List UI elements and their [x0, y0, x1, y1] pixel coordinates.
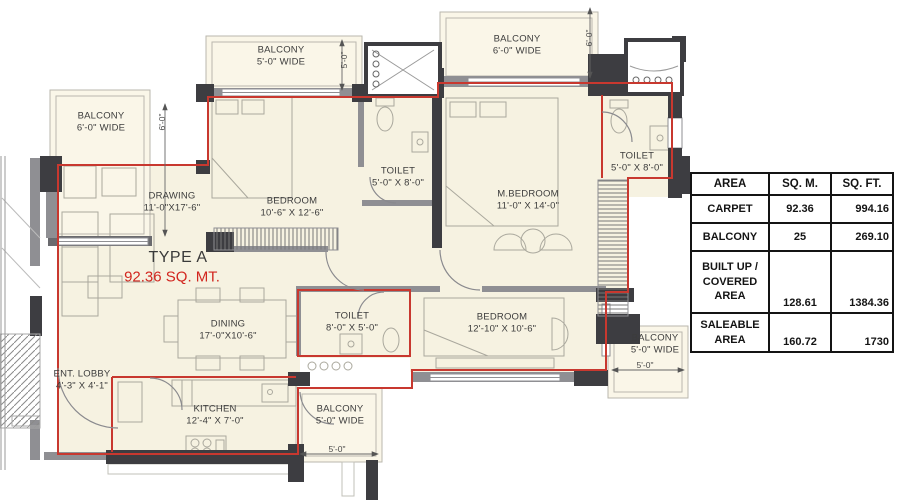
room-label-toilet-right: TOILET 5'-0" X 8'-0"	[611, 151, 663, 176]
room-name: DINING	[199, 319, 256, 331]
room-label-balcony-top: BALCONY 5'-0" WIDE	[257, 45, 305, 70]
room-label-m-bedroom: M.BEDROOM 11'-0" X 14'-0"	[497, 189, 559, 214]
room-dims: 6'-0" WIDE	[493, 46, 541, 58]
room-dims: 11'-0" X 14'-0"	[497, 201, 559, 213]
row-sqft: 1384.36	[831, 251, 893, 313]
area-table-header-area: AREA	[691, 173, 769, 195]
room-label-ent-lobby: ENT. LOBBY 4'-3" X 4'-1"	[54, 369, 111, 394]
room-name: BEDROOM	[468, 312, 537, 324]
row-label: BALCONY	[691, 223, 769, 251]
room-dims: 4'-3" X 4'-1"	[54, 381, 111, 393]
row-sqft: 994.16	[831, 195, 893, 223]
area-table-row-built-up: BUILT UP / COVERED AREA 128.61 1384.36	[691, 251, 893, 313]
room-label-kitchen: KITCHEN 12'-4" X 7'-0"	[186, 404, 244, 429]
room-label-toilet-mid: TOILET 8'-0" X 5'-0"	[326, 311, 378, 336]
room-label-balcony-right-bottom: BALCONY 5'-0" WIDE	[631, 333, 679, 358]
room-name: BEDROOM	[260, 196, 323, 208]
row-label: SALEABLE AREA	[691, 313, 769, 352]
room-dims: 5'-0" WIDE	[316, 416, 364, 428]
unit-area-label: 92.36 SQ. MT.	[124, 269, 220, 286]
room-dims: 5'-0" X 8'-0"	[372, 178, 424, 190]
room-dims: 10'-6" X 12'-6"	[260, 208, 323, 220]
area-table-row-saleable: SALEABLE AREA 160.72 1730	[691, 313, 893, 352]
room-name: TOILET	[372, 166, 424, 178]
room-dims: 12'-4" X 7'-0"	[186, 416, 244, 428]
room-name: BALCONY	[316, 404, 364, 416]
room-name: DRAWING	[144, 191, 201, 203]
row-sqm: 25	[769, 223, 831, 251]
floor-plan-page: BALCONY 6'-0" WIDE BALCONY 5'-0" WIDE BA…	[0, 0, 900, 500]
room-name: BALCONY	[493, 34, 541, 46]
area-table: AREA SQ. M. SQ. FT. CARPET 92.36 994.16 …	[690, 172, 894, 353]
area-table-header-sqft: SQ. FT.	[831, 173, 893, 195]
row-sqft: 269.10	[831, 223, 893, 251]
row-sqm: 160.72	[769, 313, 831, 352]
room-label-bedroom-1: BEDROOM 10'-6" X 12'-6"	[260, 196, 323, 221]
room-name: BALCONY	[631, 333, 679, 345]
row-sqm: 92.36	[769, 195, 831, 223]
room-dims: 5'-0" WIDE	[631, 345, 679, 357]
room-label-balcony-left: BALCONY 6'-0" WIDE	[77, 111, 125, 136]
row-label: BUILT UP / COVERED AREA	[691, 251, 769, 313]
room-dims: 17'-0"X10'-6"	[199, 331, 256, 343]
room-dims: 5'-0" X 8'-0"	[611, 163, 663, 175]
dim-balcony-bottom: 5'-0"	[329, 444, 346, 454]
room-name: KITCHEN	[186, 404, 244, 416]
room-label-balcony-bottom: BALCONY 5'-0" WIDE	[316, 404, 364, 429]
room-name: ENT. LOBBY	[54, 369, 111, 381]
dim-balcony-left: 6'-0"	[157, 114, 167, 131]
room-name: M.BEDROOM	[497, 189, 559, 201]
room-dims: 6'-0" WIDE	[77, 123, 125, 135]
dim-balcony-top-right: 6'-0"	[584, 30, 594, 47]
row-sqft: 1730	[831, 313, 893, 352]
room-dims: 8'-0" X 5'-0"	[326, 323, 378, 335]
area-table-row-balcony: BALCONY 25 269.10	[691, 223, 893, 251]
room-label-drawing: DRAWING 11'-0"X17'-6"	[144, 191, 201, 216]
room-name: TOILET	[326, 311, 378, 323]
room-name: BALCONY	[77, 111, 125, 123]
room-name: TOILET	[611, 151, 663, 163]
row-sqm: 128.61	[769, 251, 831, 313]
room-label-bedroom-2: BEDROOM 12'-10" X 10'-6"	[468, 312, 537, 337]
room-label-balcony-top-right: BALCONY 6'-0" WIDE	[493, 34, 541, 59]
room-label-toilet-1: TOILET 5'-0" X 8'-0"	[372, 166, 424, 191]
dim-balcony-right-bottom: 5'-0"	[637, 360, 654, 370]
area-table-header-row: AREA SQ. M. SQ. FT.	[691, 173, 893, 195]
room-label-dining: DINING 17'-0"X10'-6"	[199, 319, 256, 344]
room-dims: 5'-0" WIDE	[257, 57, 305, 69]
dim-balcony-top: 5'-0"	[339, 52, 349, 69]
area-table-row-carpet: CARPET 92.36 994.16	[691, 195, 893, 223]
room-dims: 11'-0"X17'-6"	[144, 203, 201, 215]
row-label: CARPET	[691, 195, 769, 223]
unit-type-label: TYPE A	[148, 249, 207, 267]
room-name: BALCONY	[257, 45, 305, 57]
area-table-header-sqm: SQ. M.	[769, 173, 831, 195]
room-dims: 12'-10" X 10'-6"	[468, 324, 537, 336]
